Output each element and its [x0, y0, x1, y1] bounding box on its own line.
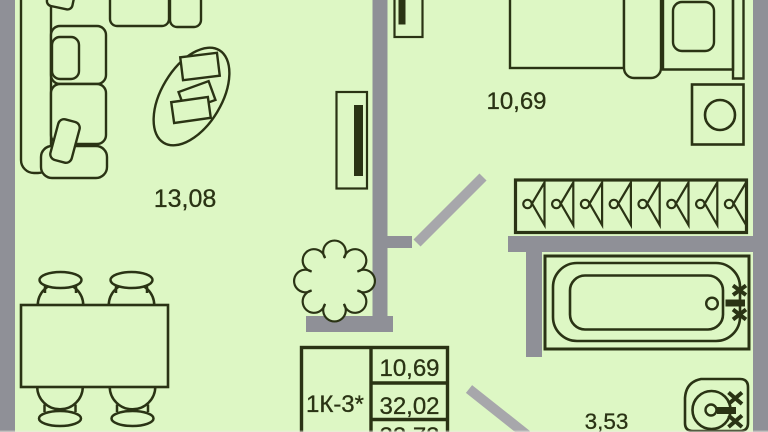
svg-text:10,69: 10,69: [486, 88, 546, 115]
svg-text:1К-3*: 1К-3*: [306, 391, 364, 418]
svg-text:10,69: 10,69: [379, 355, 439, 382]
svg-text:13,08: 13,08: [154, 185, 217, 213]
svg-text:32,02: 32,02: [379, 393, 439, 420]
svg-text:3,53: 3,53: [585, 409, 629, 432]
